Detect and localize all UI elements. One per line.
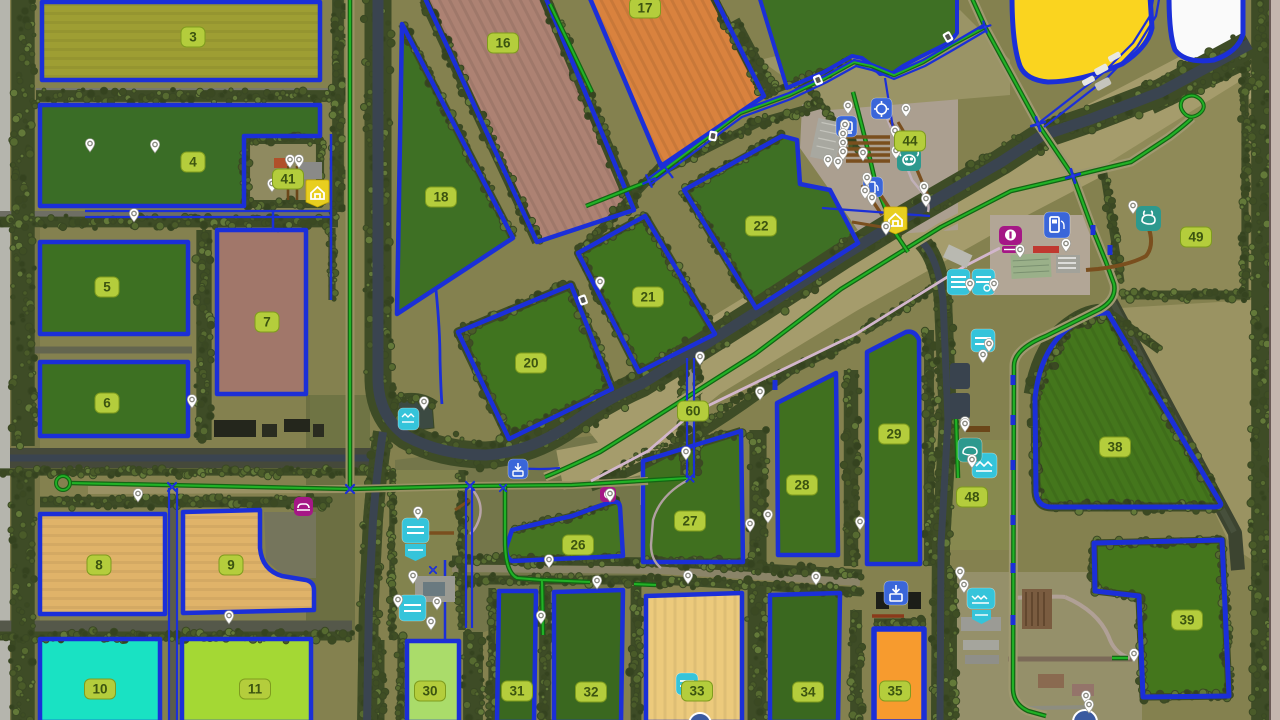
svg-text:10: 10: [92, 682, 107, 697]
svg-text:16: 16: [495, 36, 511, 51]
svg-text:7: 7: [263, 315, 271, 330]
svg-text:22: 22: [753, 219, 768, 234]
svg-text:32: 32: [583, 685, 598, 700]
svg-text:38: 38: [1107, 440, 1123, 455]
svg-text:48: 48: [964, 490, 980, 505]
svg-text:27: 27: [682, 514, 697, 529]
svg-text:21: 21: [640, 290, 656, 305]
svg-text:35: 35: [887, 684, 903, 699]
svg-text:30: 30: [422, 684, 437, 699]
svg-text:6: 6: [103, 396, 111, 411]
svg-text:41: 41: [280, 172, 296, 187]
svg-text:28: 28: [794, 478, 810, 493]
svg-text:5: 5: [103, 280, 111, 295]
svg-text:60: 60: [685, 404, 700, 419]
svg-text:31: 31: [509, 684, 525, 699]
svg-text:20: 20: [523, 356, 538, 371]
svg-text:49: 49: [1188, 230, 1203, 245]
svg-text:18: 18: [433, 190, 449, 205]
svg-text:8: 8: [95, 558, 103, 573]
svg-text:17: 17: [637, 1, 652, 16]
svg-text:34: 34: [800, 685, 816, 700]
svg-text:3: 3: [189, 30, 197, 45]
svg-text:4: 4: [189, 155, 197, 170]
svg-text:9: 9: [227, 558, 235, 573]
svg-text:29: 29: [886, 427, 901, 442]
svg-text:33: 33: [689, 684, 705, 699]
svg-text:44: 44: [902, 134, 918, 149]
svg-text:39: 39: [1179, 613, 1194, 628]
svg-text:26: 26: [570, 538, 586, 553]
svg-text:11: 11: [248, 682, 263, 697]
